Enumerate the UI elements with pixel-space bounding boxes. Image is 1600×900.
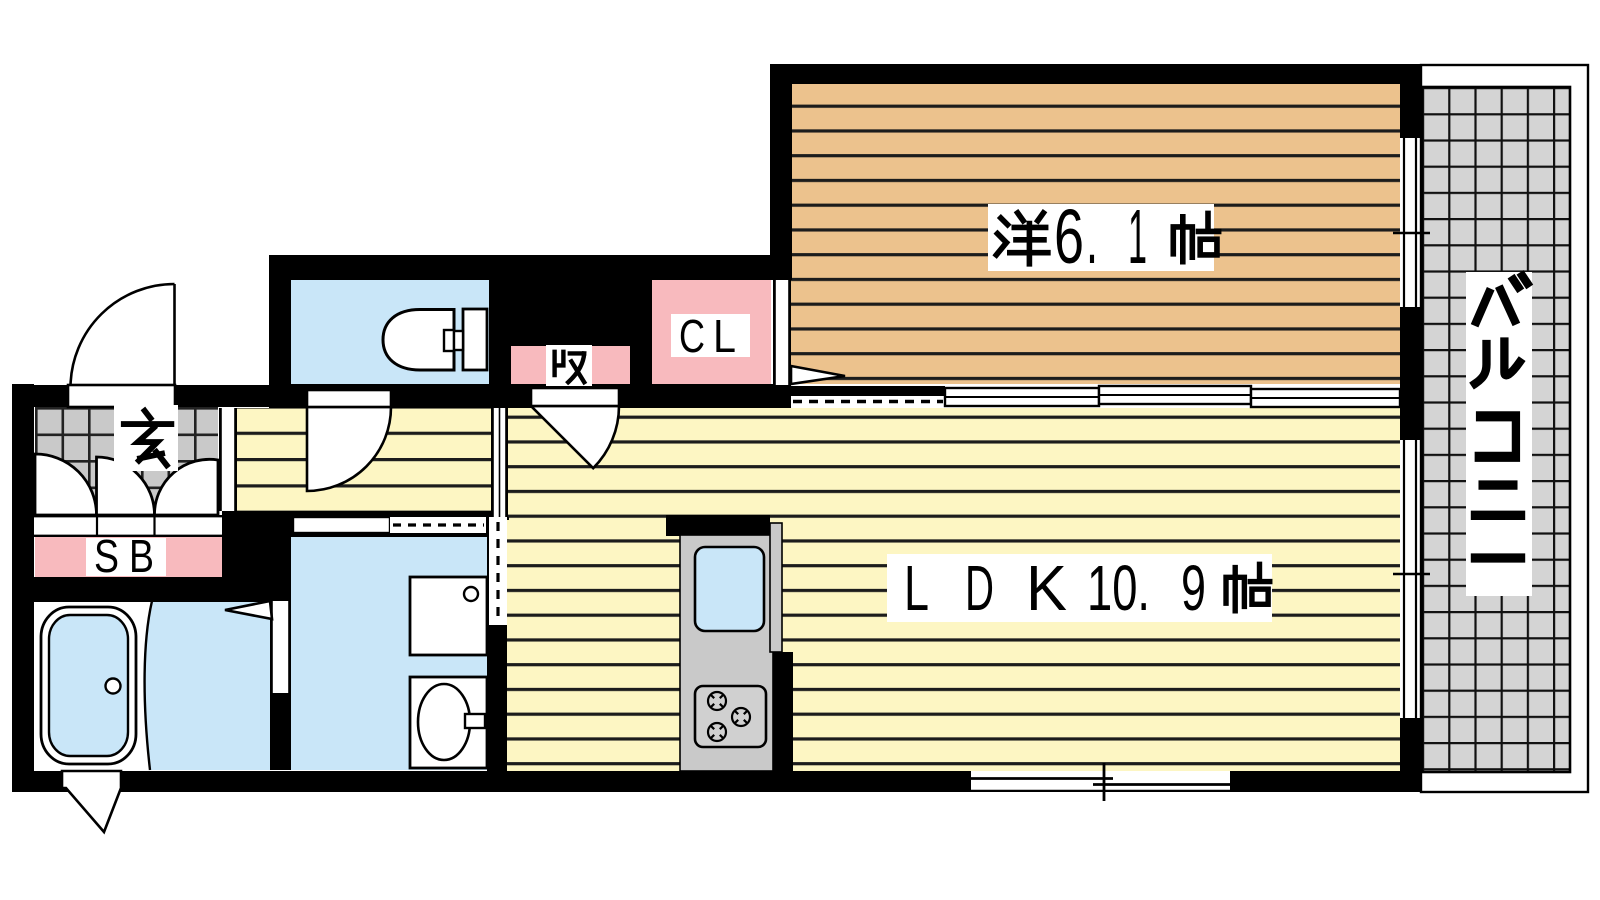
svg-text:B: B: [129, 530, 154, 582]
svg-text:L: L: [713, 310, 736, 362]
svg-text:9: 9: [1181, 552, 1206, 624]
svg-text:.: .: [1086, 194, 1098, 280]
svg-text:K: K: [1026, 552, 1067, 624]
svg-text:L: L: [904, 552, 929, 624]
svg-text:6: 6: [1054, 194, 1084, 280]
svg-text:C: C: [679, 310, 705, 362]
svg-text:S: S: [94, 530, 119, 582]
svg-text:1: 1: [1128, 194, 1147, 280]
svg-text:10.: 10.: [1087, 552, 1150, 624]
svg-text:D: D: [965, 552, 994, 624]
